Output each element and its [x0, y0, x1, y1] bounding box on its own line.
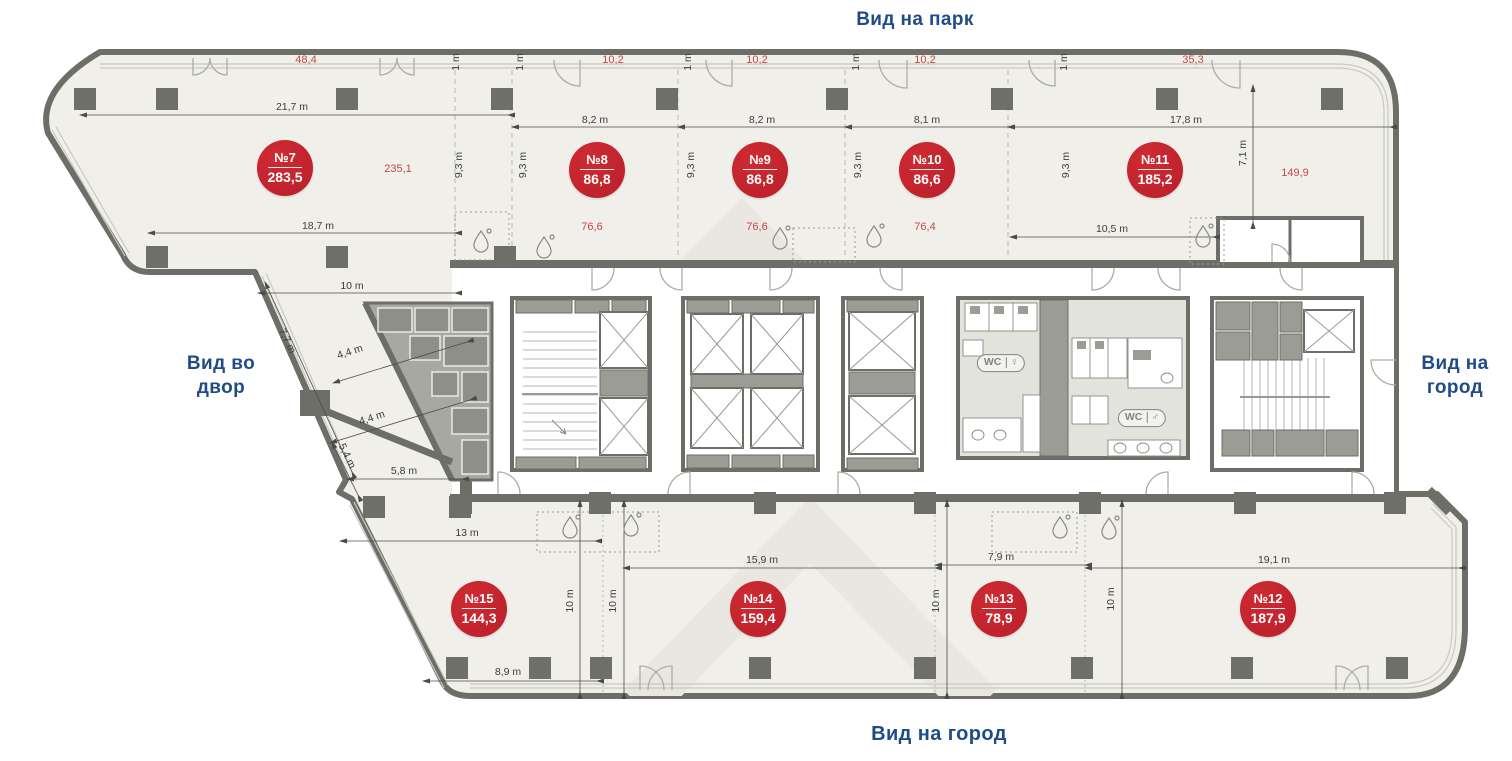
structural-column	[991, 88, 1013, 110]
unit-number: №11	[1141, 153, 1169, 167]
unit-number: №8	[586, 153, 608, 167]
area-label: 76,4	[914, 221, 935, 233]
dimension-label: 7,9 m	[988, 551, 1014, 563]
dimension-label: 1 m	[850, 53, 862, 71]
area-label: 76,6	[581, 221, 602, 233]
dimension-label: 10 m	[340, 280, 363, 292]
dimension-label: 19,1 m	[1258, 554, 1290, 566]
unit-badge-№12[interactable]: №12187,9	[1240, 581, 1296, 637]
dimension-label: 13 m	[455, 527, 478, 539]
structural-column	[749, 657, 771, 679]
badge-divider	[580, 169, 614, 170]
structural-column	[656, 88, 678, 110]
area-label: 48,4	[295, 54, 316, 66]
unit-number: №13	[985, 592, 1014, 606]
structural-column	[326, 246, 348, 268]
structural-column	[156, 88, 178, 110]
dimension-label: 8,1 m	[914, 114, 940, 126]
dimension-label: 17,8 m	[1170, 114, 1202, 126]
wc-sign-text: WC	[1125, 411, 1143, 425]
wc-sign: WC♀	[977, 354, 1025, 372]
unit-number: №14	[744, 592, 773, 606]
dimension-label: 10 m	[1105, 587, 1117, 610]
badge-divider	[1251, 608, 1285, 609]
unit-number: №15	[465, 592, 494, 606]
elevator-shaft	[751, 314, 803, 374]
unit-area: 187,9	[1250, 611, 1285, 626]
unit-area: 86,8	[746, 172, 773, 187]
dimension-label: 10 m	[564, 589, 576, 612]
structural-column	[589, 492, 611, 514]
unit-number: №7	[274, 151, 296, 165]
structural-column	[494, 246, 516, 268]
structural-column	[146, 246, 168, 268]
unit-badge-№7[interactable]: №7283,5	[257, 140, 313, 196]
wc-sign: WC♂	[1118, 409, 1166, 427]
structural-column	[529, 657, 551, 679]
view-label-court: Вид во двор	[187, 352, 255, 400]
unit-badge-№13[interactable]: №1378,9	[971, 581, 1027, 637]
unit-badge-№8[interactable]: №886,8	[569, 142, 625, 198]
structural-column	[826, 88, 848, 110]
structural-column	[491, 88, 513, 110]
structural-column	[1231, 657, 1253, 679]
unit-number: №9	[749, 153, 771, 167]
badge-divider	[982, 608, 1016, 609]
dimension-label: 9,3 m	[685, 152, 697, 178]
view-label-court-line1: Вид во	[187, 352, 255, 376]
structural-column	[1384, 492, 1406, 514]
structural-column	[1386, 657, 1408, 679]
area-label: 149,9	[1281, 167, 1309, 179]
unit-area: 144,3	[461, 611, 496, 626]
dimension-label: 8,2 m	[582, 114, 608, 126]
view-label-city-right-line2: город	[1421, 376, 1488, 400]
structural-column	[914, 492, 936, 514]
dimension-label: 8,9 m	[495, 666, 521, 678]
area-label: 76,6	[746, 221, 767, 233]
dimension-label: 1 m	[682, 53, 694, 71]
badge-divider	[268, 167, 302, 168]
unit-badge-№11[interactable]: №11185,2	[1127, 142, 1183, 198]
badge-divider	[910, 169, 944, 170]
structural-column	[449, 496, 471, 518]
wc-area	[958, 298, 1188, 458]
unit-number: №10	[913, 153, 942, 167]
elevator-shaft	[691, 388, 743, 448]
elevator-shaft	[751, 388, 803, 448]
elevator-shaft	[1304, 310, 1354, 352]
dimension-label: 18,7 m	[302, 220, 334, 232]
badge-divider	[741, 608, 775, 609]
dimension-label: 9,3 m	[517, 152, 529, 178]
unit-area: 185,2	[1137, 172, 1172, 187]
structural-column	[754, 492, 776, 514]
area-label: 35,3	[1182, 54, 1203, 66]
dimension-label: 1 m	[450, 53, 462, 71]
structural-column	[74, 88, 96, 110]
elevator-shaft	[600, 312, 648, 368]
dimension-label: 21,7 m	[276, 101, 308, 113]
elevator-shaft	[600, 398, 648, 455]
unit-badge-№10[interactable]: №1086,6	[899, 142, 955, 198]
area-label: 10,2	[914, 54, 935, 66]
elevator-shaft	[849, 312, 915, 370]
dimension-label: 5,8 m	[391, 465, 417, 477]
unit-area: 159,4	[740, 611, 775, 626]
view-label-city-right-line1: Вид на	[1421, 352, 1488, 376]
structural-column	[363, 496, 385, 518]
view-label-court-line2: двор	[187, 376, 255, 400]
dimension-label: 10 m	[607, 589, 619, 612]
female-icon: ♀	[1010, 356, 1018, 370]
structural-column	[1079, 492, 1101, 514]
area-label: 10,2	[602, 54, 623, 66]
male-icon: ♂	[1151, 411, 1159, 425]
service-core	[450, 218, 1453, 515]
dimension-label: 9,3 m	[1060, 152, 1072, 178]
dimension-label: 8,2 m	[749, 114, 775, 126]
area-label: 10,2	[746, 54, 767, 66]
elevator-shaft	[691, 314, 743, 374]
dimension-label: 9,3 m	[453, 152, 465, 178]
unit-area: 86,8	[583, 172, 610, 187]
unit-area: 283,5	[267, 170, 302, 185]
dimension-label: 1 m	[514, 53, 526, 71]
structural-column	[336, 88, 358, 110]
dimension-label: 10,5 m	[1096, 223, 1128, 235]
dimension-label: 10 m	[930, 589, 942, 612]
floor-plan-page: Вид на парк Вид во двор Вид на город Вид…	[0, 0, 1512, 761]
dimension-label: 7,1 m	[1237, 140, 1249, 166]
unit-badge-№9[interactable]: №986,8	[732, 142, 788, 198]
structural-column	[1234, 492, 1256, 514]
structural-column	[914, 657, 936, 679]
area-label: 235,1	[384, 163, 412, 175]
dimension-label: 9,3 m	[852, 152, 864, 178]
unit-area: 86,6	[913, 172, 940, 187]
unit-badge-№15[interactable]: №15144,3	[451, 581, 507, 637]
unit-badge-№14[interactable]: №14159,4	[730, 581, 786, 637]
dimension-label: 1 m	[1058, 53, 1070, 71]
wc-sign-text: WC	[984, 356, 1002, 370]
view-label-city-bottom: Вид на город	[871, 722, 1007, 747]
view-label-park: Вид на парк	[856, 8, 974, 32]
structural-column	[1321, 88, 1343, 110]
unit-number: №12	[1254, 592, 1283, 606]
badge-divider	[1138, 169, 1172, 170]
structural-column	[590, 657, 612, 679]
structural-column	[1071, 657, 1093, 679]
wc-sign-divider	[1146, 412, 1147, 423]
wc-sign-divider	[1005, 357, 1006, 368]
structural-column	[446, 657, 468, 679]
structural-column	[1156, 88, 1178, 110]
badge-divider	[743, 169, 777, 170]
badge-divider	[462, 608, 496, 609]
dimension-label: 15,9 m	[746, 554, 778, 566]
elevator-shaft	[849, 396, 915, 454]
view-label-city-right: Вид на город	[1421, 352, 1488, 400]
unit-area: 78,9	[985, 611, 1012, 626]
